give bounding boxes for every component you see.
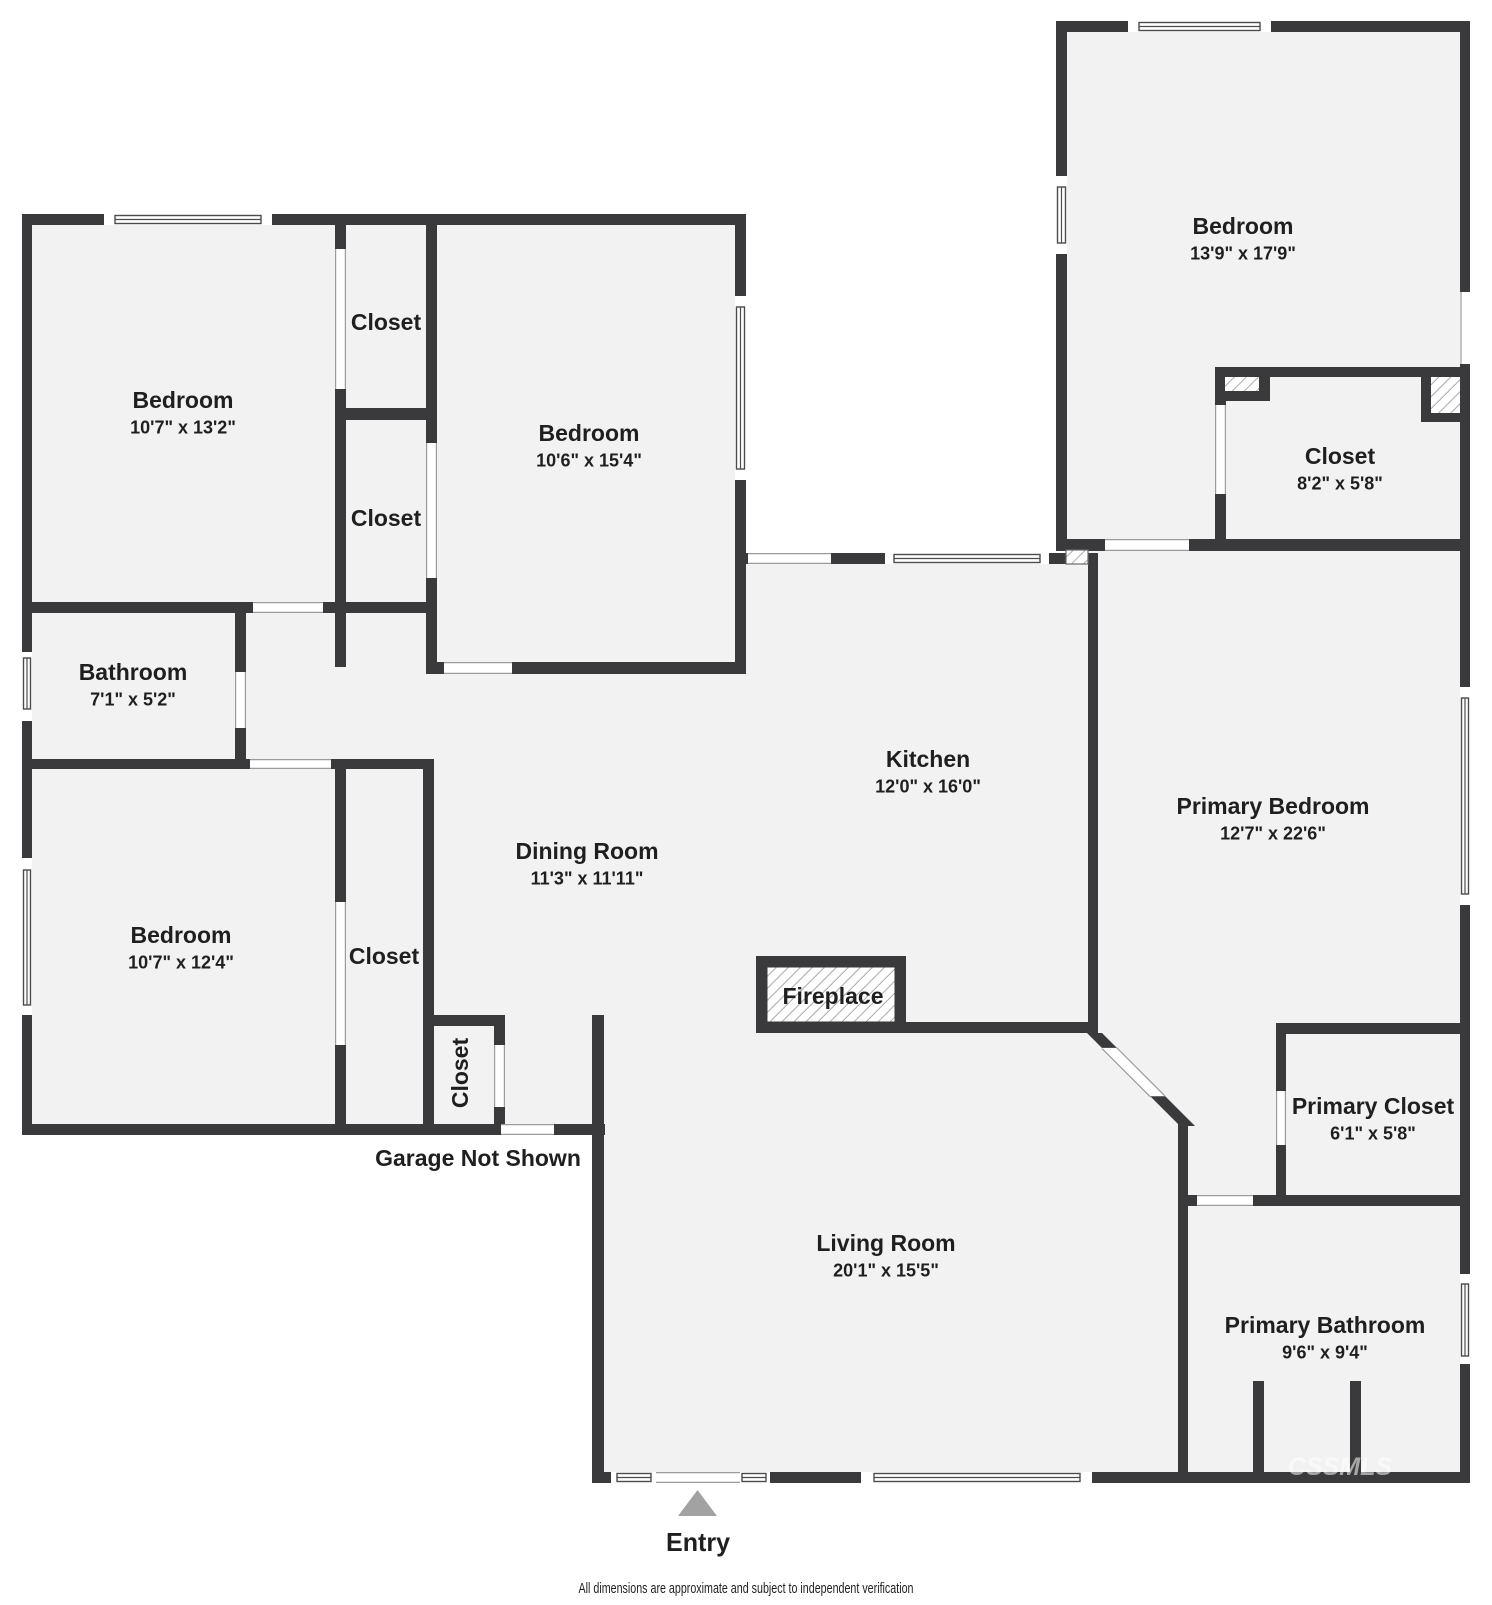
svg-text:Entry: Entry: [666, 1527, 731, 1557]
svg-text:Bathroom: Bathroom: [79, 659, 188, 685]
svg-text:7'1" x 5'2": 7'1" x 5'2": [90, 690, 176, 710]
svg-text:Closet: Closet: [1305, 443, 1376, 469]
svg-text:Primary Bedroom: Primary Bedroom: [1176, 793, 1369, 819]
svg-text:Bedroom: Bedroom: [539, 420, 640, 446]
svg-text:12'0" x 16'0": 12'0" x 16'0": [875, 777, 981, 797]
svg-text:Closet: Closet: [351, 505, 422, 531]
svg-text:8'2" x 5'8": 8'2" x 5'8": [1297, 474, 1383, 494]
svg-text:All dimensions are approximate: All dimensions are approximate and subje…: [579, 1580, 914, 1597]
svg-text:Kitchen: Kitchen: [886, 746, 970, 772]
svg-text:Closet: Closet: [349, 943, 420, 969]
svg-text:Bedroom: Bedroom: [1193, 213, 1294, 239]
svg-text:Closet: Closet: [351, 309, 422, 335]
svg-text:Primary Closet: Primary Closet: [1292, 1093, 1455, 1119]
svg-text:6'1" x 5'8": 6'1" x 5'8": [1330, 1124, 1416, 1144]
svg-text:10'7" x 12'4": 10'7" x 12'4": [128, 953, 234, 973]
svg-text:Garage Not Shown: Garage Not Shown: [375, 1145, 581, 1171]
svg-text:Primary Bathroom: Primary Bathroom: [1225, 1312, 1426, 1338]
svg-text:13'9" x 17'9": 13'9" x 17'9": [1190, 244, 1296, 264]
svg-text:9'6" x 9'4": 9'6" x 9'4": [1282, 1343, 1368, 1363]
svg-text:12'7" x 22'6": 12'7" x 22'6": [1220, 824, 1326, 844]
svg-text:CSSMLS: CSSMLS: [1288, 1453, 1393, 1481]
svg-text:Bedroom: Bedroom: [131, 922, 232, 948]
svg-text:10'6" x 15'4": 10'6" x 15'4": [536, 451, 642, 471]
svg-text:Bedroom: Bedroom: [133, 387, 234, 413]
svg-text:10'7" x 13'2": 10'7" x 13'2": [130, 418, 236, 438]
svg-text:11'3" x 11'11": 11'3" x 11'11": [531, 869, 644, 889]
svg-text:Dining Room: Dining Room: [515, 838, 658, 864]
svg-text:20'1" x 15'5": 20'1" x 15'5": [833, 1261, 939, 1281]
svg-text:Closet: Closet: [447, 1038, 473, 1109]
svg-text:Fireplace: Fireplace: [783, 983, 884, 1009]
svg-text:Living Room: Living Room: [816, 1230, 955, 1256]
